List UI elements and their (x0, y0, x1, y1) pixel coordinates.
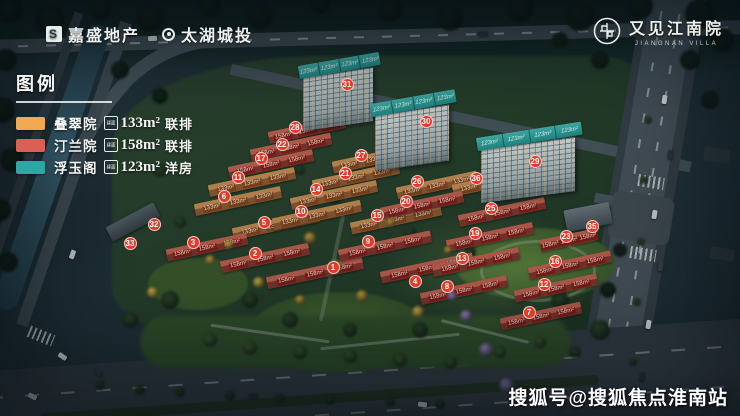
brand-subtitle: JIANGNAN VILLA (635, 41, 718, 47)
building-number-badge: 10 (295, 205, 308, 218)
legend-area: 123m² (121, 159, 161, 176)
legend-type: 洋房 (165, 158, 193, 177)
foreground-trees-layer (0, 0, 740, 416)
legend-swatch (16, 139, 45, 152)
building-number-badge: 29 (529, 155, 542, 168)
tree-blob (447, 291, 457, 301)
tree-blob (356, 290, 368, 302)
developer-logo-label: 太湖城投 (181, 22, 253, 46)
building-number-badge: 13 (456, 252, 469, 265)
legend-area-badge-icon: 建面 (104, 138, 118, 152)
legend-area-badge-icon: 建面 (104, 160, 118, 174)
building-number-badge: 21 (339, 167, 352, 180)
building-number-badge: 15 (371, 209, 384, 222)
legend-underline (16, 101, 112, 103)
building-number-badge: 7 (523, 306, 536, 319)
tree-blob (253, 277, 264, 288)
legend-swatch (16, 117, 45, 130)
legend-name: 汀兰院 (54, 135, 98, 155)
building-number-badge: 12 (538, 278, 551, 291)
building-number-badge: 14 (310, 183, 323, 196)
developer-logo-jiasheng: S 嘉盛地产 (46, 22, 140, 46)
building-number-badge: 33 (124, 237, 137, 250)
building-number-badge: 25 (485, 202, 498, 215)
building-number-badge: 8 (441, 280, 454, 293)
building-number-badge: 23 (560, 230, 573, 243)
developer-logos: S 嘉盛地产 太湖城投 (46, 22, 253, 46)
watermark: 搜狐号@搜狐焦点淮南站 (508, 383, 728, 410)
building-number-badge: 9 (362, 235, 375, 248)
legend-title: 图例 (16, 70, 193, 96)
tree-blob (295, 295, 305, 305)
building-number-badge: 6 (218, 190, 231, 203)
building-number-badge: 3 (187, 236, 200, 249)
brand-title: 又见江南院 (629, 15, 724, 39)
building-number-badge: 19 (469, 227, 482, 240)
building-number-badge: 27 (355, 149, 368, 162)
promo-rendering: 158m²158m²158m²158m²158m²158m²158m²158m²… (0, 0, 740, 416)
building-number-badge: 16 (549, 255, 562, 268)
building-number-badge: 31 (341, 78, 354, 91)
building-number-badge: 22 (276, 138, 289, 151)
building-number-badge: 1 (327, 261, 340, 274)
tree-blob (444, 246, 452, 254)
legend-item: 浮玉阁建面123m²洋房 (16, 160, 193, 174)
legend-name: 浮玉阁 (54, 157, 98, 177)
brand-emblem-icon (593, 17, 621, 45)
building-number-badge: 36 (470, 172, 483, 185)
car (478, 32, 487, 37)
project-brand: 又见江南院 JIANGNAN VILLA (593, 15, 724, 47)
building-number-badge: 2 (249, 247, 262, 260)
building-number-badge: 32 (148, 218, 161, 231)
legend-type: 联排 (165, 114, 193, 133)
building-number-badge: 26 (411, 175, 424, 188)
legend-name: 叠翠院 (54, 113, 98, 133)
tree-blob (224, 240, 233, 249)
legend-area-badge-icon: 建面 (104, 116, 118, 130)
car (248, 394, 257, 400)
building-number-badge: 5 (258, 216, 271, 229)
brand-text: 又见江南院 JIANGNAN VILLA (629, 15, 724, 47)
tree-blob (304, 232, 316, 244)
car (418, 402, 427, 408)
legend-area: 158m² (121, 137, 161, 154)
legend-area: 133m² (121, 115, 161, 132)
legend-item: 叠翠院建面133m²联排 (16, 116, 193, 130)
tree-blob (205, 255, 215, 265)
legend-swatch (16, 161, 45, 174)
tree-blob (460, 310, 472, 322)
building-number-badge: 35 (586, 220, 599, 233)
taihu-logo-icon (162, 28, 175, 41)
legend-item: 汀兰院建面158m²联排 (16, 138, 193, 152)
building-number-badge: 4 (409, 275, 422, 288)
tree-blob (479, 343, 493, 357)
tree-blob (147, 287, 158, 298)
building-number-badge: 20 (400, 195, 413, 208)
legend-type: 联排 (165, 136, 193, 155)
legend: 图例 叠翠院建面133m²联排汀兰院建面158m²联排浮玉阁建面123m²洋房 (16, 70, 193, 182)
building-number-badge: 30 (420, 115, 433, 128)
tree-blob (386, 218, 395, 227)
legend-items: 叠翠院建面133m²联排汀兰院建面158m²联排浮玉阁建面123m²洋房 (16, 116, 193, 174)
building-number-badge: 11 (232, 171, 245, 184)
tree-blob (412, 306, 424, 318)
building-number-badge: 17 (255, 152, 268, 165)
developer-logo-taihu: 太湖城投 (162, 22, 253, 46)
developer-logo-label: 嘉盛地产 (68, 22, 140, 46)
jiasheng-logo-icon: S (46, 26, 62, 42)
building-number-badge: 28 (289, 121, 302, 134)
